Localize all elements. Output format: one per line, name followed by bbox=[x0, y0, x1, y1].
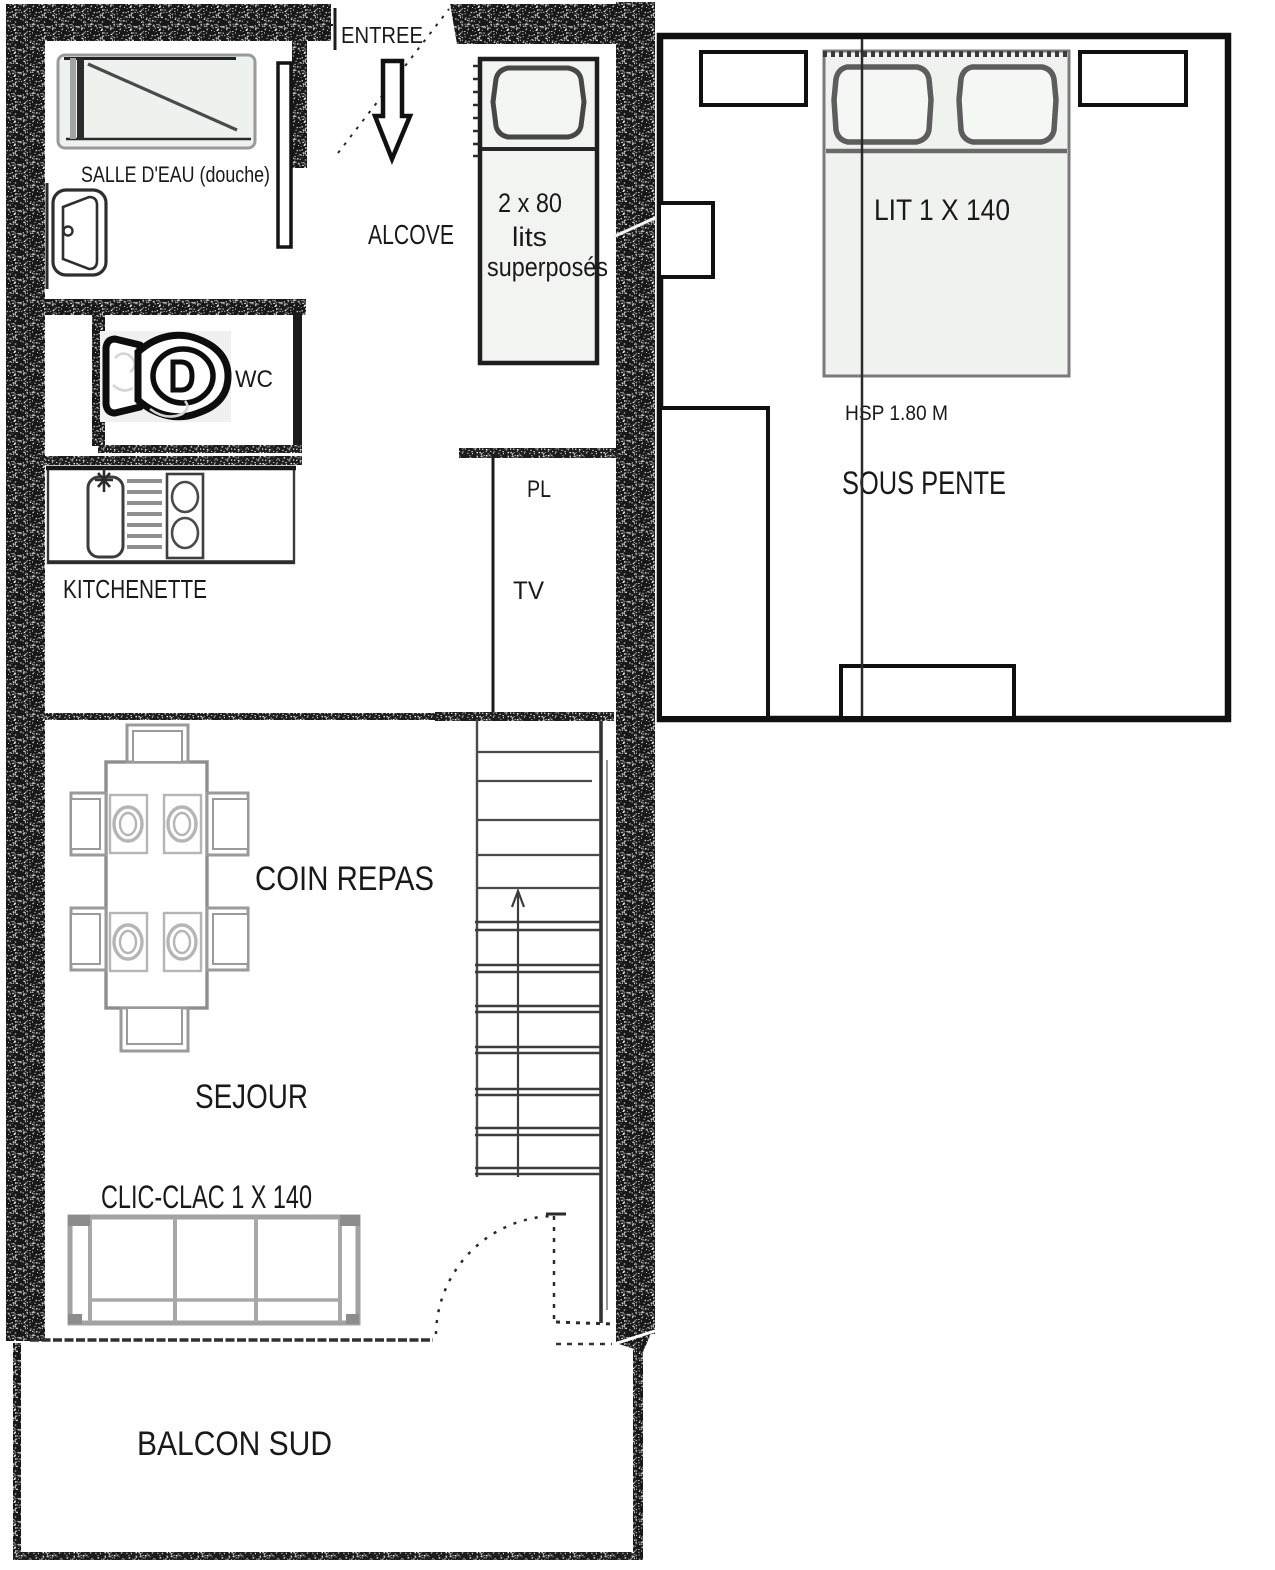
svg-text:ALCOVE: ALCOVE bbox=[368, 219, 454, 250]
svg-text:SEJOUR: SEJOUR bbox=[195, 1078, 308, 1116]
svg-text:lits: lits bbox=[512, 222, 547, 252]
svg-text:SOUS PENTE: SOUS PENTE bbox=[842, 465, 1006, 501]
svg-text:CLIC-CLAC 1 X 140: CLIC-CLAC 1 X 140 bbox=[101, 1179, 312, 1215]
svg-text:COIN REPAS: COIN REPAS bbox=[255, 860, 434, 898]
svg-text:BALCON SUD: BALCON SUD bbox=[137, 1425, 332, 1463]
svg-text:superposés: superposés bbox=[487, 252, 608, 282]
svg-text:KITCHENETTE: KITCHENETTE bbox=[63, 574, 207, 604]
svg-text:2 x 80: 2 x 80 bbox=[498, 188, 562, 218]
svg-text:LIT 1 X 140: LIT 1 X 140 bbox=[874, 194, 1010, 227]
svg-text:HSP 1.80 M: HSP 1.80 M bbox=[845, 402, 948, 425]
svg-text:ENTREE: ENTREE bbox=[341, 22, 423, 48]
svg-text:WC: WC bbox=[235, 366, 273, 393]
svg-text:SALLE D'EAU (douche): SALLE D'EAU (douche) bbox=[81, 162, 270, 187]
svg-text:TV: TV bbox=[513, 577, 544, 605]
svg-text:PL: PL bbox=[527, 476, 551, 503]
